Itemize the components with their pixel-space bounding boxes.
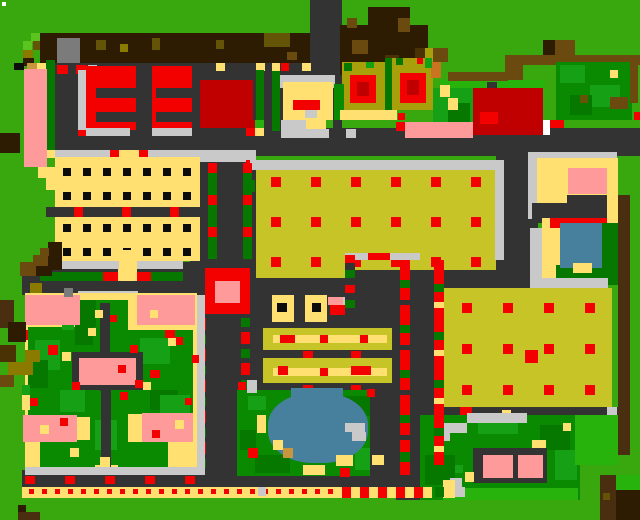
map-tile — [293, 100, 320, 110]
dash-segment — [243, 173, 252, 195]
map-tile — [344, 63, 352, 71]
map-tile — [165, 330, 175, 338]
crosswalk-dots — [302, 489, 307, 494]
map-tile — [352, 432, 366, 441]
right-field-dots — [462, 385, 472, 395]
apartment-windows-top — [63, 192, 71, 200]
map-tile — [96, 40, 106, 50]
east-road-dashes-left — [400, 378, 410, 390]
map-tile — [46, 150, 55, 158]
map-tile — [287, 52, 297, 60]
map-tile — [433, 48, 448, 62]
map-tile — [542, 218, 550, 228]
map-tile — [607, 195, 618, 223]
map-tile — [137, 261, 183, 269]
map-tile — [555, 450, 577, 480]
map-tile — [25, 467, 203, 475]
map-tile — [8, 362, 33, 375]
map-tile — [312, 303, 321, 312]
apartment-windows-top — [183, 168, 191, 176]
map-tile — [568, 168, 607, 194]
dash-segment — [345, 270, 355, 278]
map-tile — [505, 63, 523, 80]
map-tile — [634, 112, 640, 120]
apartment-windows-top — [143, 192, 151, 200]
road-dashes-left-upper — [208, 227, 217, 237]
map-tile — [60, 418, 68, 426]
map-tile — [246, 128, 255, 136]
map-tile — [580, 95, 588, 103]
apartment-windows-bottom — [163, 248, 171, 256]
east-road-dashes-left — [400, 395, 410, 415]
map-tile — [431, 62, 441, 78]
map-tile — [248, 396, 266, 410]
map-tile — [303, 465, 325, 475]
map-tile — [448, 98, 458, 110]
map-tile — [175, 337, 183, 345]
crosswalk-dots — [289, 489, 294, 494]
east-road-dashes-left — [400, 288, 410, 300]
crosswalk-east — [396, 487, 405, 498]
apartment-windows-top — [83, 168, 91, 176]
crosswalk-dots — [55, 489, 60, 494]
map-tile — [170, 207, 179, 217]
crosswalk-east — [360, 487, 369, 498]
map-tile — [192, 355, 199, 363]
map-tile — [328, 297, 343, 305]
crosswalk-east — [414, 487, 423, 498]
central-field-dots — [351, 177, 361, 187]
map-tile — [455, 487, 465, 497]
map-tile — [305, 110, 317, 118]
map-tile — [320, 335, 328, 343]
map-tile — [38, 167, 55, 178]
map-tile — [25, 476, 35, 484]
map-tile — [216, 63, 225, 71]
map-tile — [417, 58, 423, 64]
dash-segment — [241, 318, 250, 327]
map-tile — [518, 455, 543, 478]
map-tile — [65, 476, 75, 484]
map-tile — [425, 58, 432, 68]
dash-segment — [241, 363, 250, 375]
map-tile — [118, 250, 137, 281]
map-tile — [257, 415, 266, 433]
east-road-dashes-left — [400, 325, 410, 333]
map-tile — [130, 345, 138, 353]
map-tile — [277, 303, 287, 312]
map-tile — [351, 366, 371, 375]
map-tile — [118, 442, 168, 467]
map-tile — [152, 128, 192, 136]
map-tile — [302, 63, 311, 71]
map-tile — [238, 382, 246, 390]
map-tile — [396, 58, 403, 65]
roof-e — [142, 413, 193, 442]
roof-d — [23, 415, 77, 442]
apartment-windows-bottom — [83, 224, 91, 232]
map-tile — [434, 465, 444, 475]
apartment-windows-bottom — [103, 224, 111, 232]
central-field-dots — [471, 177, 481, 187]
map-tile — [400, 452, 410, 462]
right-field-dots — [462, 303, 472, 313]
map-tile — [78, 70, 86, 128]
map-tile — [25, 350, 40, 362]
map-tile — [175, 420, 184, 429]
map-tile — [368, 253, 390, 260]
map-tile — [281, 120, 306, 129]
map-tile — [560, 65, 585, 83]
right-field-dots — [544, 385, 554, 395]
dash-segment — [243, 227, 252, 237]
crosswalk-dots — [120, 489, 125, 494]
map-tile — [630, 55, 638, 103]
map-tile — [575, 415, 618, 465]
crosswalk-dots — [224, 489, 229, 494]
crosswalk-dots — [94, 489, 99, 494]
map-tile — [185, 398, 192, 405]
map-tile — [62, 352, 71, 361]
map-tile — [550, 120, 564, 128]
east-road-dashes-right — [434, 292, 444, 302]
crosswalk-dots — [250, 489, 255, 494]
east-road-dashes-right — [434, 332, 444, 340]
map-tile — [105, 476, 115, 484]
crosswalk-dots — [237, 489, 242, 494]
map-tile — [247, 380, 257, 393]
apartment-windows-top — [123, 192, 131, 200]
dash-segment — [345, 300, 355, 308]
dash-segment — [345, 255, 355, 263]
map-tile — [22, 385, 30, 395]
map-tile — [150, 310, 158, 318]
central-field-dots — [351, 217, 361, 227]
crosswalk-dots — [42, 489, 47, 494]
map-tile — [440, 85, 450, 97]
map-tile — [495, 160, 504, 260]
map-tile — [347, 18, 357, 28]
chimney — [57, 38, 80, 63]
crosswalk-dots — [211, 489, 216, 494]
apartment-windows-top — [143, 168, 151, 176]
map-tile — [40, 440, 95, 467]
map-tile — [88, 328, 96, 336]
map-tile — [103, 272, 118, 281]
crosswalk-dots — [276, 489, 281, 494]
map-tile — [46, 178, 55, 190]
east-road-dashes-left — [400, 370, 410, 378]
map-tile — [255, 120, 264, 128]
map-tile — [610, 97, 628, 109]
map-tile — [525, 350, 538, 363]
central-field-dots — [431, 217, 441, 227]
map-tile — [465, 472, 474, 482]
map-tile — [372, 455, 384, 465]
dash-segment — [345, 285, 355, 293]
map-tile — [57, 261, 119, 269]
roof-b — [137, 295, 195, 325]
central-field-dots — [471, 217, 481, 227]
map-tile — [567, 195, 607, 205]
map-tile — [366, 62, 374, 68]
map-tile — [543, 120, 550, 135]
crosswalk-east — [387, 487, 396, 498]
map-tile — [74, 207, 83, 217]
right-field-dots — [544, 303, 554, 313]
apartment-windows-bottom — [143, 224, 151, 232]
map-tile — [248, 448, 258, 458]
map-tile — [455, 465, 463, 473]
map-tile — [530, 228, 542, 283]
map-tile — [22, 395, 30, 410]
dash-segment — [243, 195, 252, 205]
map-tile — [150, 370, 160, 378]
crosswalk-east — [405, 487, 414, 498]
map-tile — [610, 70, 618, 78]
map-tile — [345, 423, 365, 432]
map-tile — [396, 122, 405, 131]
map-tile — [168, 338, 176, 346]
map-tile — [340, 468, 350, 477]
map-tile — [122, 207, 131, 217]
map-tile — [140, 338, 170, 364]
map-tile — [60, 390, 85, 412]
map-tile — [36, 266, 52, 276]
dash-segment — [345, 308, 355, 315]
crosswalk-dots — [133, 489, 138, 494]
map-tile — [156, 112, 192, 122]
east-fence — [618, 195, 630, 455]
apartment-windows-top — [103, 192, 111, 200]
map-tile — [120, 392, 128, 400]
pink-walk — [24, 69, 47, 167]
map-tile — [79, 358, 136, 385]
east-road-dashes-left — [400, 423, 410, 435]
map-tile — [78, 130, 86, 136]
road-dashes-left-upper — [208, 195, 217, 205]
crosswalk-dots — [328, 489, 333, 494]
fence-top — [448, 72, 508, 81]
hedge-column — [46, 60, 55, 152]
map-tile — [398, 113, 405, 120]
map-tile — [352, 40, 368, 54]
map-tile — [137, 272, 151, 281]
map-tile — [100, 457, 110, 467]
apartment-windows-top — [163, 168, 171, 176]
garden-pond — [560, 223, 602, 268]
east-road-dashes-right — [434, 388, 444, 398]
apartment-windows-bottom — [103, 248, 111, 256]
map-tile — [151, 272, 183, 281]
crosswalk-dots — [81, 489, 86, 494]
map-tile — [340, 110, 397, 120]
map-tile — [0, 133, 20, 153]
map-tile — [57, 65, 68, 74]
map-tile — [130, 430, 139, 439]
map-tile — [272, 63, 280, 71]
apartment-windows-bottom — [183, 248, 191, 256]
east-road-dashes-right — [434, 356, 444, 380]
map-tile — [281, 129, 329, 138]
central-field-dots — [311, 217, 321, 227]
map-tile — [40, 425, 49, 434]
map-tile — [240, 430, 256, 450]
map-tile — [145, 476, 155, 484]
map-tile — [601, 223, 618, 285]
road-dashes-left-upper — [208, 205, 217, 227]
map-tile — [467, 413, 527, 423]
east-road-dashes-left — [400, 280, 410, 288]
crosswalk-east — [351, 487, 360, 498]
apartment-windows-top — [103, 168, 111, 176]
east-road-dashes-right — [434, 340, 444, 350]
map-tile — [40, 248, 49, 256]
map-tile — [152, 430, 160, 438]
apartment-windows-top — [83, 192, 91, 200]
crosswalk-dots — [68, 489, 73, 494]
right-field-dots — [503, 303, 513, 313]
town-map-canvas[interactable] — [0, 0, 640, 520]
map-tile — [120, 44, 128, 52]
map-tile — [18, 512, 40, 520]
right-field-dots — [462, 344, 472, 354]
map-tile — [278, 366, 288, 375]
central-field-dots — [271, 257, 281, 267]
crosswalk-east — [369, 487, 378, 498]
right-field-dots — [503, 344, 513, 354]
east-road-dashes-left — [400, 333, 410, 345]
crosswalk-east — [378, 487, 387, 498]
map-tile — [291, 388, 343, 398]
east-road-dashes-left — [400, 260, 410, 280]
central-field-dots — [391, 217, 401, 227]
east-road-dashes-right — [434, 380, 444, 388]
east-road-dashes-right — [434, 284, 444, 292]
map-tile — [281, 63, 289, 71]
map-tile — [185, 476, 195, 484]
apartment-windows-top — [63, 168, 71, 176]
roof-a — [25, 295, 80, 325]
map-tile — [532, 440, 546, 448]
map-tile — [101, 390, 111, 467]
map-tile — [23, 41, 32, 50]
map-tile — [357, 82, 369, 96]
map-tile — [96, 88, 136, 98]
map-tile — [72, 382, 80, 390]
apartment-windows-top — [123, 168, 131, 176]
field-sidewalk — [246, 160, 496, 170]
apartment-windows-bottom — [83, 248, 91, 256]
crosswalk-dots — [159, 489, 164, 494]
map-tile — [400, 440, 410, 452]
crosswalk-dots — [172, 489, 177, 494]
apartment-windows-bottom — [183, 224, 191, 232]
apartment-windows-bottom — [63, 224, 71, 232]
crosswalk-east — [342, 487, 351, 498]
apartment-windows-bottom — [143, 248, 151, 256]
map-tile — [135, 380, 143, 388]
map-tile — [258, 487, 266, 496]
pink-awning — [405, 122, 473, 138]
dash-segment — [241, 349, 250, 358]
dash-segment — [345, 293, 355, 300]
map-tile — [95, 310, 103, 318]
apartment-windows-top — [183, 192, 191, 200]
map-tile — [543, 40, 555, 55]
east-road-dashes-right — [434, 308, 444, 332]
map-tile — [8, 322, 26, 342]
dash-segment — [243, 205, 252, 227]
map-tile — [336, 455, 353, 466]
map-tile — [272, 71, 280, 131]
map-tile — [367, 389, 375, 397]
map-tile — [603, 493, 610, 500]
dash-segment — [243, 163, 252, 173]
dash-segment — [243, 237, 252, 259]
right-field-dots — [585, 385, 595, 395]
central-field-dots — [271, 217, 281, 227]
map-tile — [398, 18, 410, 32]
road-dashes-left-upper — [208, 237, 217, 259]
map-tile — [70, 448, 79, 457]
map-tile — [273, 440, 283, 450]
map-tile — [563, 423, 571, 431]
right-field-dots — [503, 385, 513, 395]
map-tile — [215, 281, 240, 303]
map-tile — [306, 120, 326, 129]
central-field-dots — [471, 257, 481, 267]
central-field-dots — [271, 177, 281, 187]
map-tile — [197, 295, 205, 475]
east-road-dashes-right — [434, 428, 444, 436]
map-tile — [480, 112, 498, 124]
map-tile — [443, 480, 455, 498]
dash-segment — [345, 278, 355, 285]
map-tile — [280, 335, 295, 343]
crosswalk-dots — [146, 489, 151, 494]
map-tile — [573, 263, 592, 273]
central-field-dots — [311, 257, 321, 267]
right-field-dots — [585, 303, 595, 313]
map-tile — [64, 288, 73, 297]
map-tile — [14, 63, 24, 70]
map-tile — [0, 345, 16, 362]
map-tile — [407, 80, 419, 95]
map-tile — [143, 382, 151, 390]
apartment-windows-bottom — [123, 224, 131, 232]
apartment-windows-bottom — [163, 224, 171, 232]
map-tile — [435, 487, 444, 497]
central-field-dots — [391, 177, 401, 187]
east-road-dashes-left — [400, 305, 410, 325]
map-tile — [264, 33, 290, 47]
crosswalk-dots — [107, 489, 112, 494]
east-road-dashes-left — [400, 415, 410, 423]
map-tile — [30, 398, 38, 406]
map-tile — [346, 129, 356, 138]
map-tile — [616, 475, 640, 490]
map-tile — [255, 128, 264, 136]
map-tile — [360, 335, 368, 343]
east-road-dashes-right — [434, 404, 444, 428]
right-field-dots — [585, 344, 595, 354]
map-tile — [256, 270, 350, 278]
map-tile — [320, 368, 328, 376]
map-tile — [434, 452, 444, 465]
road-dashes-left-upper — [208, 163, 217, 173]
map-tile — [152, 38, 160, 50]
